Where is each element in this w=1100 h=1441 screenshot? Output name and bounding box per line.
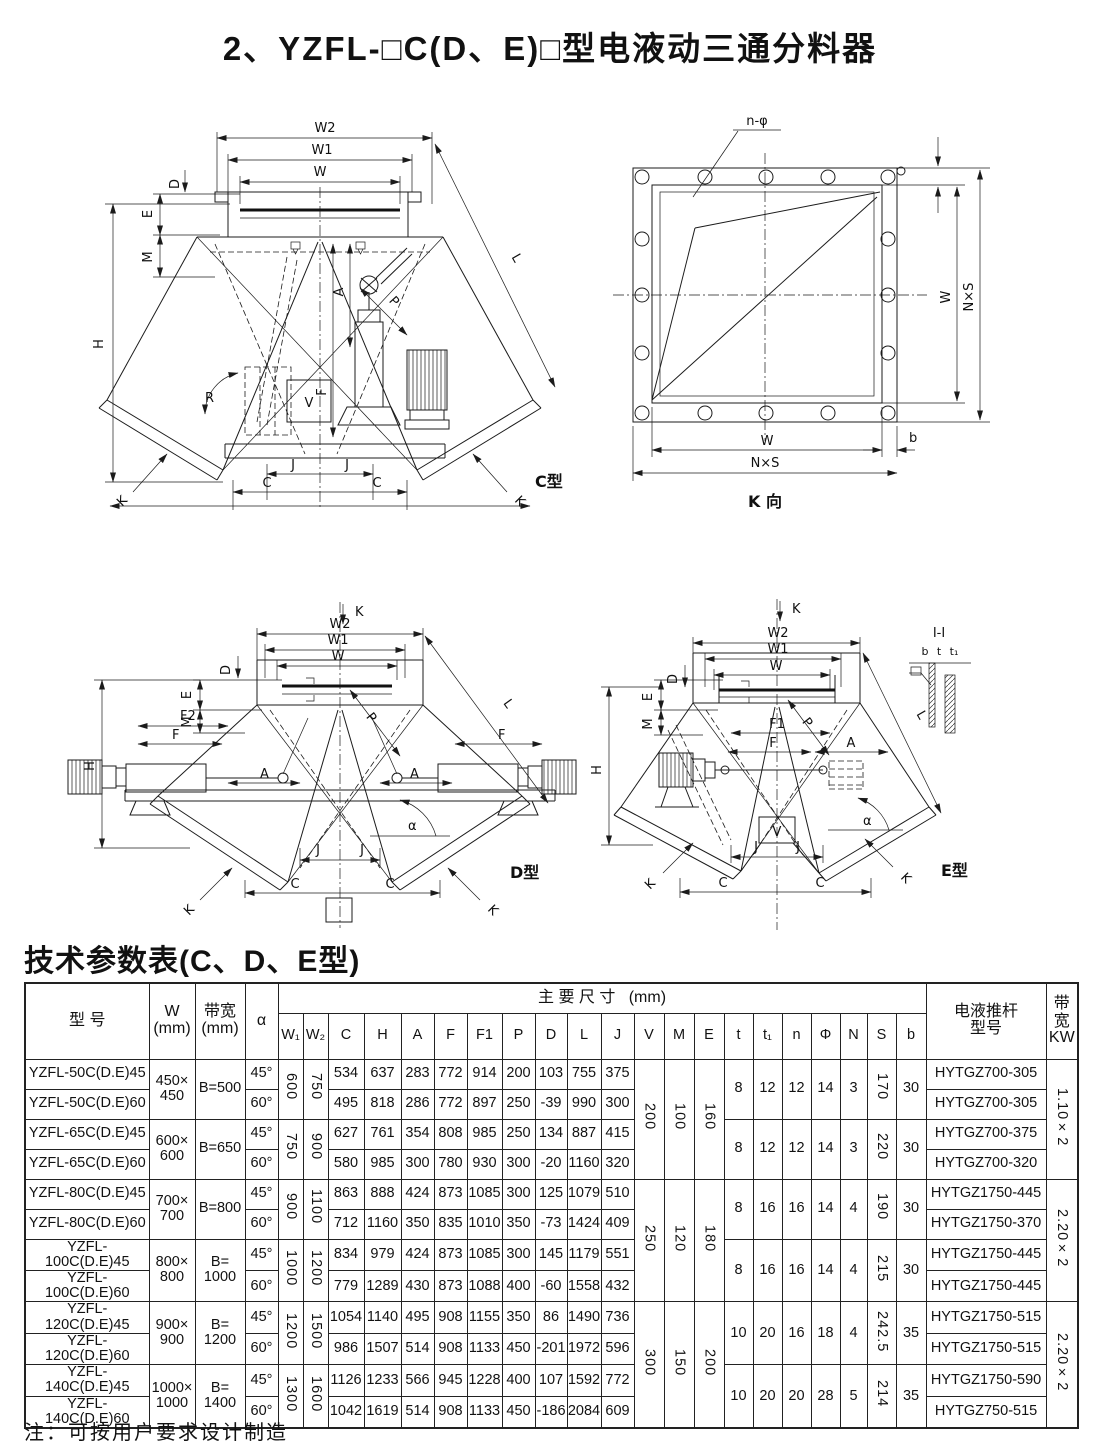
main-dims-label: 主 要 尺 寸 <box>538 989 615 1006</box>
dim-label-w1: W1 <box>311 143 332 158</box>
pusher-header-line1: 电液推杆 <box>927 1004 1046 1021</box>
cell-h: 888 <box>364 1179 401 1209</box>
cell-model: YZFL-120C(D.E)45 <box>25 1302 149 1333</box>
cell-j: 551 <box>601 1239 634 1270</box>
cell-phi: 14 <box>811 1179 840 1239</box>
cell-h: 761 <box>364 1119 401 1149</box>
cell-w: 600×600 <box>149 1119 195 1179</box>
cell-f1: 1133 <box>467 1333 502 1364</box>
cell-pusher: HYTGZ700-375 <box>926 1119 1046 1149</box>
cell-pusher: HYTGZ1750-370 <box>926 1209 1046 1239</box>
cell-a: 566 <box>401 1365 434 1396</box>
cell-p: 300 <box>502 1149 535 1179</box>
cell-f: 772 <box>434 1089 467 1119</box>
cell-n: 12 <box>782 1059 811 1119</box>
cell-alpha: 60° <box>245 1149 278 1179</box>
cell-p: 200 <box>502 1059 535 1089</box>
col-header-f1: F1 <box>467 1013 502 1059</box>
cell-pusher: HYTGZ700-305 <box>926 1089 1046 1119</box>
dim-label-k: K <box>484 902 501 919</box>
cell-w2: 1100 <box>303 1179 328 1239</box>
dim-label-c: C <box>262 476 271 491</box>
table-row: YZFL-80C(D.E)45700×700B=80045°9001100863… <box>25 1179 1078 1209</box>
cell-f: 808 <box>434 1119 467 1149</box>
dim-label-f2: F2 <box>180 709 196 724</box>
dim-label-p: P <box>385 294 402 310</box>
cell-w1: 1200 <box>278 1302 303 1365</box>
caption-e-type: E型 <box>941 861 968 880</box>
cell-f: 873 <box>434 1270 467 1301</box>
cell-d: -186 <box>535 1396 567 1428</box>
cell-d: -73 <box>535 1209 567 1239</box>
cell-f1: 1085 <box>467 1179 502 1209</box>
cell-h: 1140 <box>364 1302 401 1333</box>
cell-j: 320 <box>601 1149 634 1179</box>
cell-w: 800×800 <box>149 1239 195 1302</box>
cell-p: 400 <box>502 1270 535 1301</box>
dim-label-w: W <box>314 165 327 180</box>
cell-m: 120 <box>664 1179 694 1302</box>
dim-label-b: b <box>922 645 929 658</box>
col-header-w: W (mm) <box>149 983 195 1059</box>
dim-label-j: J <box>290 458 295 473</box>
cell-b: 30 <box>896 1119 926 1179</box>
cell-l: 1079 <box>567 1179 601 1209</box>
cell-b: 30 <box>896 1239 926 1302</box>
cell-p: 350 <box>502 1302 535 1333</box>
cell-a: 514 <box>401 1396 434 1428</box>
dim-label-r: R <box>205 391 214 406</box>
dim-label-t: t <box>937 645 942 658</box>
dim-label-v: V <box>305 396 314 411</box>
dim-label-a: A <box>260 767 269 782</box>
cell-j: 772 <box>601 1365 634 1396</box>
cell-pusher: HYTGZ700-320 <box>926 1149 1046 1179</box>
cell-a: 300 <box>401 1149 434 1179</box>
cell-d: -60 <box>535 1270 567 1301</box>
cell-phi: 18 <box>811 1302 840 1365</box>
cell-alpha: 45° <box>245 1119 278 1149</box>
cell-p: 350 <box>502 1209 535 1239</box>
cell-nn: 3 <box>840 1119 867 1179</box>
dim-label-k: K <box>897 870 914 887</box>
cell-h: 985 <box>364 1149 401 1179</box>
cell-pusher: HYTGZ1750-445 <box>926 1239 1046 1270</box>
cell-c: 1054 <box>328 1302 364 1333</box>
cell-v: 200 <box>634 1059 664 1179</box>
cell-p: 400 <box>502 1365 535 1396</box>
dim-label-m: M <box>641 718 656 729</box>
cell-kw: 2.20×2 <box>1046 1179 1078 1302</box>
cell-t1: 20 <box>753 1365 782 1428</box>
dim-label-w: W <box>770 659 783 674</box>
cell-a: 354 <box>401 1119 434 1149</box>
cell-p: 250 <box>502 1119 535 1149</box>
cell-pusher: HYTGZ1750-445 <box>926 1179 1046 1209</box>
col-header-p: P <box>502 1013 535 1059</box>
section-label-ii: I-I <box>933 626 945 641</box>
dim-label-w: W <box>332 649 345 664</box>
col-header-t1: t₁ <box>753 1013 782 1059</box>
cell-s: 190 <box>867 1179 896 1239</box>
drawing-d-type: K W2 W1 W D E M F2 F F H A A P L α J J C… <box>50 598 580 933</box>
cell-d: 125 <box>535 1179 567 1209</box>
dim-label-b: b <box>909 431 917 446</box>
dim-label-w: W <box>939 290 954 303</box>
cell-phi: 14 <box>811 1239 840 1302</box>
cell-t: 10 <box>724 1365 753 1428</box>
col-header-bandwidth: 带宽 (mm) <box>195 983 245 1059</box>
caption-k-view: K 向 <box>748 492 782 511</box>
cell-d: 145 <box>535 1239 567 1270</box>
cell-c: 534 <box>328 1059 364 1089</box>
cell-kw: 1.10×2 <box>1046 1059 1078 1179</box>
col-header-phi: Φ <box>811 1013 840 1059</box>
col-header-t: t <box>724 1013 753 1059</box>
cell-model: YZFL-100C(D.E)45 <box>25 1239 149 1270</box>
cell-pusher: HYTGZ1750-515 <box>926 1302 1046 1333</box>
cell-pusher: HYTGZ1750-445 <box>926 1270 1046 1301</box>
cell-h: 1289 <box>364 1270 401 1301</box>
cell-d: 103 <box>535 1059 567 1089</box>
cell-e: 180 <box>694 1179 724 1302</box>
cell-f1: 930 <box>467 1149 502 1179</box>
dim-label-f: F <box>315 388 330 395</box>
cell-a: 286 <box>401 1089 434 1119</box>
cell-t: 8 <box>724 1059 753 1119</box>
cell-l: 1179 <box>567 1239 601 1270</box>
drawing-c-type: W2 W1 W D E M H L A F P R V J J C C K K … <box>55 92 600 512</box>
dim-label-j: J <box>359 843 364 858</box>
cell-w: 450×450 <box>149 1059 195 1119</box>
dim-label-h: H <box>590 765 605 775</box>
cell-alpha: 60° <box>245 1089 278 1119</box>
cell-alpha: 45° <box>245 1179 278 1209</box>
dim-label-j: J <box>753 840 758 855</box>
cell-e: 200 <box>694 1302 724 1428</box>
dim-label-f: F <box>498 728 505 743</box>
dim-label-f: F <box>172 728 179 743</box>
cell-p: 450 <box>502 1333 535 1364</box>
cell-t1: 12 <box>753 1059 782 1119</box>
cell-n: 12 <box>782 1119 811 1179</box>
cell-t1: 12 <box>753 1119 782 1179</box>
table-row: YZFL-100C(D.E)45800×800B=100045°10001200… <box>25 1239 1078 1270</box>
dim-label-alpha: α <box>863 814 872 829</box>
cell-model: YZFL-65C(D.E)45 <box>25 1119 149 1149</box>
cell-model: YZFL-80C(D.E)60 <box>25 1209 149 1239</box>
dim-label-c: C <box>718 876 727 891</box>
col-header-e: E <box>694 1013 724 1059</box>
cell-d: -39 <box>535 1089 567 1119</box>
cell-w: 900×900 <box>149 1302 195 1365</box>
dim-label-t1: t₁ <box>950 645 959 658</box>
cell-a: 424 <box>401 1239 434 1270</box>
dim-label-l: L <box>913 708 930 722</box>
cell-c: 986 <box>328 1333 364 1364</box>
cell-l: 887 <box>567 1119 601 1149</box>
cell-v: 300 <box>634 1302 664 1428</box>
dim-label-l: L <box>508 251 525 265</box>
cell-a: 514 <box>401 1333 434 1364</box>
cell-s: 220 <box>867 1119 896 1179</box>
cell-w2: 750 <box>303 1059 328 1119</box>
dim-label-k: K <box>114 493 131 510</box>
cell-nn: 4 <box>840 1239 867 1302</box>
d-type-linework <box>68 602 576 928</box>
cell-w2: 1600 <box>303 1365 328 1428</box>
cell-f: 908 <box>434 1396 467 1428</box>
cell-phi: 14 <box>811 1119 840 1179</box>
cell-h: 1507 <box>364 1333 401 1364</box>
col-header-w-label: W <box>150 1004 195 1021</box>
cell-kw: 2.20×2 <box>1046 1302 1078 1428</box>
dim-label-c: C <box>385 877 394 892</box>
cell-alpha: 60° <box>245 1270 278 1301</box>
dim-label-j: J <box>795 840 800 855</box>
cell-c: 1126 <box>328 1365 364 1396</box>
cell-bandwidth: B=800 <box>195 1179 245 1239</box>
dim-label-k: K <box>181 902 198 919</box>
cell-e: 160 <box>694 1059 724 1179</box>
cell-c: 627 <box>328 1119 364 1149</box>
cell-p: 250 <box>502 1089 535 1119</box>
cell-m: 150 <box>664 1302 694 1428</box>
cell-t: 10 <box>724 1302 753 1365</box>
cell-h: 979 <box>364 1239 401 1270</box>
cell-j: 736 <box>601 1302 634 1333</box>
cell-d: 107 <box>535 1365 567 1396</box>
drawing-k-view: n-φ W N×S W b N×S K 向 <box>605 95 1085 525</box>
col-header-bandwidth-unit: (mm) <box>196 1021 245 1038</box>
dim-label-d: D <box>666 674 681 684</box>
dim-label-k: K <box>642 876 659 893</box>
pusher-header-line2: 型号 <box>927 1021 1046 1038</box>
col-header-h: H <box>364 1013 401 1059</box>
cell-model: YZFL-80C(D.E)45 <box>25 1179 149 1209</box>
dim-label-w1: W1 <box>327 633 348 648</box>
table-row: YZFL-120C(D.E)45900×900B=120045°12001500… <box>25 1302 1078 1333</box>
cell-j: 375 <box>601 1059 634 1089</box>
col-header-f: F <box>434 1013 467 1059</box>
col-header-s: S <box>867 1013 896 1059</box>
dim-label-n-phi: n-φ <box>746 114 768 129</box>
cell-pusher: HYTGZ1750-590 <box>926 1365 1046 1396</box>
cell-f: 945 <box>434 1365 467 1396</box>
cell-s: 215 <box>867 1239 896 1302</box>
cell-c: 863 <box>328 1179 364 1209</box>
cell-alpha: 45° <box>245 1239 278 1270</box>
cell-c: 580 <box>328 1149 364 1179</box>
cell-t: 8 <box>724 1119 753 1179</box>
cell-bandwidth: B=650 <box>195 1119 245 1179</box>
cell-n: 16 <box>782 1239 811 1302</box>
cell-w1: 600 <box>278 1059 303 1119</box>
cell-l: 990 <box>567 1089 601 1119</box>
cell-f: 873 <box>434 1239 467 1270</box>
cell-p: 300 <box>502 1239 535 1270</box>
dim-label-w2: W2 <box>329 617 350 632</box>
cell-f1: 1085 <box>467 1239 502 1270</box>
dim-label-p: P <box>362 710 379 726</box>
cell-a: 424 <box>401 1179 434 1209</box>
cell-w2: 900 <box>303 1119 328 1179</box>
cell-h: 818 <box>364 1089 401 1119</box>
footnote: 注：可按用户要求设计制造 <box>24 1416 288 1441</box>
cell-model: YZFL-50C(D.E)45 <box>25 1059 149 1089</box>
dim-label-f: F <box>769 736 776 751</box>
col-header-main-dims: 主 要 尺 寸 (mm) <box>278 983 926 1013</box>
drawing-e-type: K W2 W1 W D E M H F1 F A P L α V J J C C… <box>573 595 1100 935</box>
cell-w1: 750 <box>278 1119 303 1179</box>
cell-nn: 4 <box>840 1179 867 1239</box>
dim-label-a: A <box>332 287 347 296</box>
cell-t: 8 <box>724 1179 753 1239</box>
cell-h: 1160 <box>364 1209 401 1239</box>
cell-phi: 28 <box>811 1365 840 1428</box>
dim-label-c: C <box>372 476 381 491</box>
dim-label-v: V <box>773 825 782 840</box>
dim-label-w2: W2 <box>767 626 788 641</box>
cell-model: YZFL-50C(D.E)60 <box>25 1089 149 1119</box>
dim-label-w: W <box>761 434 774 449</box>
col-header-bandwidth-label: 带宽 <box>196 1004 245 1021</box>
dim-label-w2: W2 <box>314 121 335 136</box>
cell-alpha: 45° <box>245 1302 278 1333</box>
cell-pusher: HYTGZ1750-515 <box>926 1333 1046 1364</box>
cell-n: 16 <box>782 1179 811 1239</box>
cell-a: 430 <box>401 1270 434 1301</box>
cell-w1: 1000 <box>278 1239 303 1302</box>
cell-l: 755 <box>567 1059 601 1089</box>
cell-f: 780 <box>434 1149 467 1179</box>
cell-d: 134 <box>535 1119 567 1149</box>
main-dims-unit: (mm) <box>629 989 666 1006</box>
dim-label-f1: F1 <box>769 717 785 732</box>
cell-d: -201 <box>535 1333 567 1364</box>
cell-f: 908 <box>434 1302 467 1333</box>
dim-label-e: E <box>641 693 656 701</box>
dim-label-d: D <box>219 665 234 675</box>
col-header-nn: N <box>840 1013 867 1059</box>
k-view-linework <box>613 130 990 481</box>
cell-l: 1160 <box>567 1149 601 1179</box>
cell-p: 450 <box>502 1396 535 1428</box>
cell-d: -20 <box>535 1149 567 1179</box>
cell-b: 35 <box>896 1302 926 1365</box>
cell-nn: 5 <box>840 1365 867 1428</box>
cell-t1: 16 <box>753 1179 782 1239</box>
dim-label-m: M <box>141 251 156 262</box>
caption-c-type: C型 <box>535 472 563 491</box>
cell-j: 432 <box>601 1270 634 1301</box>
cell-alpha: 60° <box>245 1209 278 1239</box>
cell-nn: 3 <box>840 1059 867 1119</box>
cell-s: 214 <box>867 1365 896 1428</box>
cell-n: 20 <box>782 1365 811 1428</box>
cell-w: 700×700 <box>149 1179 195 1239</box>
dim-label-e: E <box>141 210 156 218</box>
dim-label-j: J <box>344 458 349 473</box>
caption-d-type: D型 <box>510 863 539 882</box>
cell-t: 8 <box>724 1239 753 1302</box>
document-page: 2、YZFL-□C(D、E)□型电液动三通分料器 <box>0 0 1100 1441</box>
cell-j: 415 <box>601 1119 634 1149</box>
col-header-kw: 带宽 KW <box>1046 983 1078 1059</box>
cell-f: 835 <box>434 1209 467 1239</box>
cell-a: 283 <box>401 1059 434 1089</box>
dim-label-c: C <box>290 877 299 892</box>
cell-f1: 1155 <box>467 1302 502 1333</box>
col-header-n: n <box>782 1013 811 1059</box>
cell-m: 100 <box>664 1059 694 1179</box>
cell-alpha: 45° <box>245 1059 278 1089</box>
cell-j: 510 <box>601 1179 634 1209</box>
cell-b: 30 <box>896 1059 926 1119</box>
col-header-j: J <box>601 1013 634 1059</box>
dim-label-j: J <box>315 843 320 858</box>
col-header-v: V <box>634 1013 664 1059</box>
cell-alpha: 60° <box>245 1333 278 1364</box>
cell-f1: 1228 <box>467 1365 502 1396</box>
params-table: 型 号 W (mm) 带宽 (mm) α 主 要 尺 寸 (mm) 电液推杆 型… <box>24 982 1079 1429</box>
table-row: YZFL-50C(D.E)45450×450B=50045°6007505346… <box>25 1059 1078 1089</box>
col-header-pusher: 电液推杆 型号 <box>926 983 1046 1059</box>
cell-t1: 16 <box>753 1239 782 1302</box>
col-header-l: L <box>567 1013 601 1059</box>
cell-w2: 1200 <box>303 1239 328 1302</box>
cell-f: 873 <box>434 1179 467 1209</box>
cell-model: YZFL-65C(D.E)60 <box>25 1149 149 1179</box>
cell-d: 86 <box>535 1302 567 1333</box>
kw-header-label: 带宽 <box>1053 995 1071 1030</box>
cell-pusher: HYTGZ750-515 <box>926 1396 1046 1428</box>
cell-s: 242.5 <box>867 1302 896 1365</box>
cell-h: 637 <box>364 1059 401 1089</box>
cell-j: 300 <box>601 1089 634 1119</box>
col-header-c: C <box>328 1013 364 1059</box>
cell-model: YZFL-120C(D.E)60 <box>25 1333 149 1364</box>
cell-l: 1592 <box>567 1365 601 1396</box>
dim-label-nxs: N×S <box>962 283 977 312</box>
cell-j: 596 <box>601 1333 634 1364</box>
cell-pusher: HYTGZ700-305 <box>926 1059 1046 1089</box>
cell-model: YZFL-100C(D.E)60 <box>25 1270 149 1301</box>
cell-alpha: 45° <box>245 1365 278 1396</box>
cell-c: 712 <box>328 1209 364 1239</box>
dim-label-k: K <box>355 605 364 620</box>
cell-c: 1042 <box>328 1396 364 1428</box>
cell-f: 772 <box>434 1059 467 1089</box>
dim-label-a: A <box>410 767 419 782</box>
cell-l: 1490 <box>567 1302 601 1333</box>
cell-l: 1558 <box>567 1270 601 1301</box>
col-header-m: M <box>664 1013 694 1059</box>
dim-label-nxs: N×S <box>751 456 780 471</box>
cell-h: 1619 <box>364 1396 401 1428</box>
cell-l: 1424 <box>567 1209 601 1239</box>
col-header-w2: W₂ <box>303 1013 328 1059</box>
cell-j: 409 <box>601 1209 634 1239</box>
cell-f1: 1088 <box>467 1270 502 1301</box>
cell-l: 2084 <box>567 1396 601 1428</box>
cell-t1: 20 <box>753 1302 782 1365</box>
cell-b: 35 <box>896 1365 926 1428</box>
cell-phi: 14 <box>811 1059 840 1119</box>
cell-c: 834 <box>328 1239 364 1270</box>
dim-label-w1: W1 <box>767 642 788 657</box>
cell-f1: 985 <box>467 1119 502 1149</box>
